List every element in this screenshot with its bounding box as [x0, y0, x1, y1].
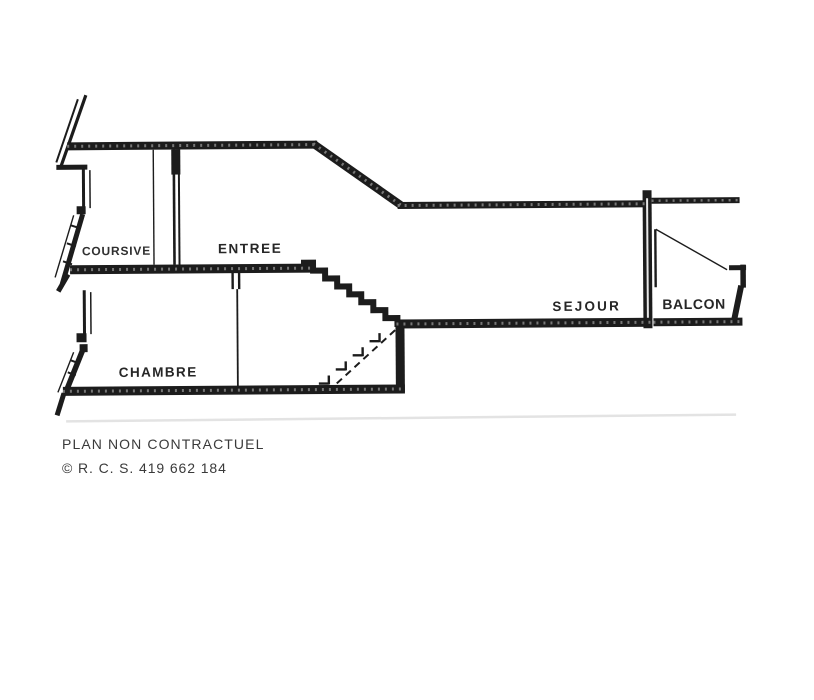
balcon-door [655, 229, 727, 287]
wall-coursive-divider [153, 150, 154, 265]
room-label-entree: ENTREE [218, 241, 282, 256]
wall-entree-left [171, 150, 181, 265]
room-label-sejour: SEJOUR [552, 298, 621, 313]
scan-artifact-line [66, 415, 736, 422]
wall-balcon-bottom [653, 322, 742, 323]
staircase-lower-dashed [318, 328, 397, 392]
wall-balcon-right [729, 265, 746, 319]
room-label-chambre: CHAMBRE [119, 364, 198, 380]
plan-disclaimer: PLAN NON CONTRACTUEL [62, 436, 264, 452]
wall-top [67, 145, 317, 147]
staircase-upper-steps [301, 262, 397, 328]
wall-upper-left-diagonal [56, 95, 86, 165]
floor-plan-page: COURSIVE ENTREE SEJOUR BALCON CHAMBRE PL… [0, 0, 814, 700]
plan-registration-number: © R. C. S. 419 662 184 [62, 460, 227, 476]
wall-chambre-divider [237, 289, 238, 388]
floor-plan-canvas: COURSIVE ENTREE SEJOUR BALCON CHAMBRE [0, 0, 814, 700]
floor-plan-drawing [0, 0, 814, 700]
room-label-coursive: COURSIVE [82, 244, 151, 258]
wall-left-window-upper [76, 168, 90, 214]
room-label-balcon: BALCON [662, 296, 726, 312]
wall-chambre-bottom [63, 389, 405, 391]
wall-sejour-balcon-pillar [647, 190, 648, 328]
